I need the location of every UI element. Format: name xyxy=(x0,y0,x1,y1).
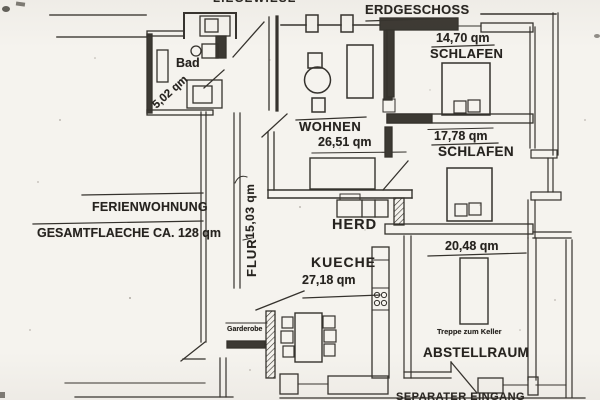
label-wohnen-area: 26,51 qm xyxy=(318,136,372,149)
round-table-icon xyxy=(305,53,331,112)
label-liegewiese: LIEGEWIESE xyxy=(213,0,297,6)
shower-icon xyxy=(187,80,222,108)
label-bad-name: Bad xyxy=(176,57,200,70)
terrace-boundary xyxy=(50,15,146,37)
flur-walls xyxy=(201,112,240,397)
flur-exterior-door-swing xyxy=(181,342,205,361)
label-herd: HERD xyxy=(332,218,377,233)
garderobe-niche xyxy=(226,311,275,378)
label-treppe-zum-keller: Treppe zum Keller xyxy=(437,328,502,336)
label-garderobe: Garderobe xyxy=(227,326,262,333)
label-gesamtflaeche: GESAMTFLAECHE CA. 128 qm xyxy=(37,227,221,240)
label-flur-area: 15,03 qm xyxy=(244,184,256,239)
wohnen-walls xyxy=(268,15,392,190)
label-kueche-area: 27,18 qm xyxy=(302,274,356,287)
label-schlafen-nord-name: SCHLAFEN xyxy=(430,47,503,60)
right-outer-walls xyxy=(528,13,572,397)
floor-plan-linework xyxy=(0,0,600,400)
scan-artifacts xyxy=(0,1,600,398)
label-schlafen-nord-area: 14,70 qm xyxy=(436,32,490,45)
floor-plan-scan: LIEGEWIESE ERDGESCHOSS Bad 5,02 qm WOHNE… xyxy=(0,0,600,400)
label-schlafen-mitte-name: SCHLAFEN xyxy=(438,145,514,159)
kueche-door-swing xyxy=(256,291,304,310)
label-eingang: SEPARATER EINGANG xyxy=(396,392,525,400)
stairs-icon xyxy=(460,258,488,324)
label-kueche-name: KUECHE xyxy=(311,255,376,269)
label-wohnen-name: WOHNEN xyxy=(299,120,361,133)
bath-shelf-icon xyxy=(157,50,168,82)
label-erdgeschoss: ERDGESCHOSS xyxy=(365,3,469,16)
label-ferienwohnung: FERIENWOHNUNG xyxy=(92,201,208,214)
label-schlafen-mitte-area: 17,78 qm xyxy=(434,130,488,143)
dining-table-icon xyxy=(281,313,336,362)
label-abstellraum-area: 20,48 qm xyxy=(445,240,499,253)
bed-icon-mitte xyxy=(447,168,492,221)
label-flur-name: FLUR xyxy=(245,238,258,277)
label-abstellraum-name: ABSTELLRAUM xyxy=(423,346,529,360)
bed-icon-nord xyxy=(442,63,490,115)
washbasin-icon xyxy=(200,16,230,36)
sofa-icon xyxy=(347,45,373,98)
